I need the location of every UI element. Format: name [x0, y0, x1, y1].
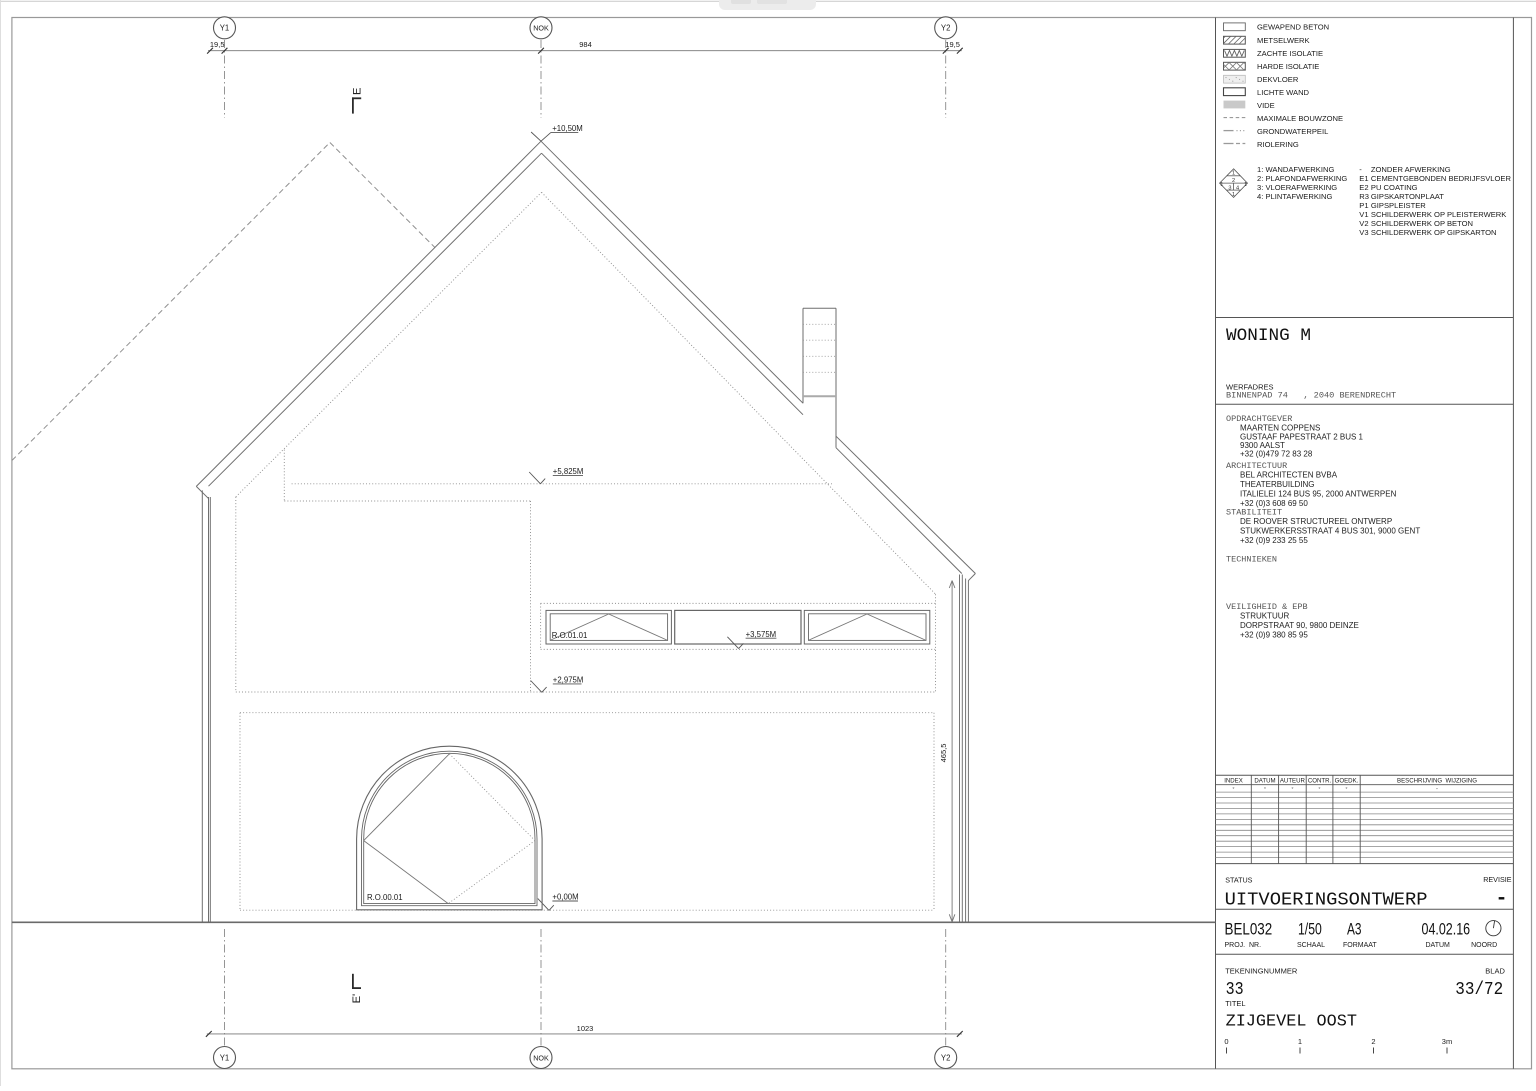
- svg-text:BEL032: BEL032: [1225, 921, 1273, 939]
- svg-text:19,5: 19,5: [945, 40, 960, 49]
- svg-text:SCHAAL: SCHAAL: [1297, 942, 1325, 949]
- svg-text:ZIJGEVEL OOST: ZIJGEVEL OOST: [1226, 1013, 1357, 1032]
- svg-text:STATUS: STATUS: [1225, 876, 1252, 885]
- svg-text:4: 4: [1236, 185, 1239, 191]
- svg-text:+2,975M: +2,975M: [553, 675, 584, 684]
- svg-text:THEATERBUILDING: THEATERBUILDING: [1240, 480, 1315, 489]
- svg-text:ZACHTE ISOLATIE: ZACHTE ISOLATIE: [1257, 49, 1323, 58]
- svg-text:VEILIGHEID & EPB: VEILIGHEID & EPB: [1226, 602, 1308, 612]
- svg-text:1: 1: [1298, 1037, 1302, 1046]
- svg-text:1: WANDAFWERKING: 1: WANDAFWERKING: [1257, 165, 1334, 174]
- svg-text:WONING M: WONING M: [1226, 326, 1311, 346]
- svg-text:Y1: Y1: [220, 1053, 230, 1062]
- svg-text:1: 1: [1232, 192, 1235, 198]
- svg-text:TITEL: TITEL: [1225, 999, 1245, 1008]
- svg-text:1: 1: [1220, 182, 1223, 188]
- svg-text:1023: 1023: [577, 1024, 594, 1033]
- svg-text:OPDRACHTGEVER: OPDRACHTGEVER: [1226, 414, 1292, 424]
- svg-text:SCHILDERWERK OP BETON: SCHILDERWERK OP BETON: [1371, 219, 1473, 228]
- svg-text:GEWAPEND BETON: GEWAPEND BETON: [1257, 23, 1329, 32]
- svg-text:NOK: NOK: [533, 24, 549, 33]
- svg-text:Y2: Y2: [941, 24, 951, 33]
- svg-text:9300 AALST: 9300 AALST: [1240, 441, 1285, 450]
- svg-text:+10,50M: +10,50M: [552, 124, 583, 133]
- svg-text:PU COATING: PU COATING: [1371, 183, 1418, 192]
- svg-text:P1: P1: [1359, 201, 1368, 210]
- svg-text:Y1: Y1: [220, 24, 230, 33]
- svg-text:E': E': [351, 994, 363, 1004]
- svg-text:04.02.16: 04.02.16: [1422, 921, 1471, 939]
- svg-text:GIPSKARTONPLAAT: GIPSKARTONPLAAT: [1371, 192, 1444, 201]
- svg-text:E: E: [351, 88, 363, 95]
- svg-text:DE ROOVER STRUCTUREEL ONTWERP: DE ROOVER STRUCTUREEL ONTWERP: [1240, 517, 1392, 526]
- svg-text:V3: V3: [1359, 228, 1368, 237]
- svg-text:AUTEUR: AUTEUR: [1280, 777, 1306, 784]
- svg-text:R.O.01.01: R.O.01.01: [552, 631, 588, 640]
- svg-text:NOORD: NOORD: [1471, 942, 1497, 949]
- svg-text:2: 2: [1371, 1037, 1375, 1046]
- svg-text:3: 3: [1228, 185, 1231, 191]
- svg-text:METSELWERK: METSELWERK: [1257, 36, 1310, 45]
- svg-text:BLAD: BLAD: [1485, 967, 1505, 976]
- svg-text:VIDE: VIDE: [1257, 101, 1275, 110]
- svg-text:4: PLINTAFWERKING: 4: PLINTAFWERKING: [1257, 192, 1332, 201]
- svg-text:BESCHRIJVING WIJZIGING: BESCHRIJVING WIJZIGING: [1397, 777, 1477, 784]
- svg-text:GIPSPLEISTER: GIPSPLEISTER: [1371, 201, 1426, 210]
- svg-text:DATUM: DATUM: [1254, 777, 1275, 784]
- svg-text:0: 0: [1224, 1037, 1228, 1046]
- svg-text:Y2: Y2: [941, 1053, 951, 1062]
- svg-text:CEMENTGEBONDEN BEDRIJFSVLOER: CEMENTGEBONDEN BEDRIJFSVLOER: [1371, 174, 1512, 183]
- svg-text:V1: V1: [1359, 210, 1368, 219]
- svg-text:+5,825M: +5,825M: [553, 467, 584, 476]
- svg-text:+32 (0)9 233 25 55: +32 (0)9 233 25 55: [1240, 536, 1308, 545]
- svg-text:2: PLAFONDAFWERKING: 2: PLAFONDAFWERKING: [1257, 174, 1347, 183]
- svg-text:LICHTE WAND: LICHTE WAND: [1257, 88, 1310, 97]
- svg-text:465,5: 465,5: [939, 744, 948, 763]
- svg-text:RIOLERING: RIOLERING: [1257, 140, 1299, 149]
- svg-text:984: 984: [579, 40, 592, 49]
- svg-text:BEL ARCHITECTEN BVBA: BEL ARCHITECTEN BVBA: [1240, 471, 1338, 480]
- svg-text:E1: E1: [1359, 174, 1368, 183]
- svg-text:DORPSTRAAT 90, 9800 DEINZE: DORPSTRAAT 90, 9800 DEINZE: [1240, 621, 1359, 630]
- svg-text:SCHILDERWERK OP GIPSKARTON: SCHILDERWERK OP GIPSKARTON: [1371, 228, 1497, 237]
- svg-text:STRUKTUUR: STRUKTUUR: [1240, 612, 1290, 621]
- svg-text:REVISIE: REVISIE: [1483, 875, 1512, 884]
- svg-text:HARDE ISOLATIE: HARDE ISOLATIE: [1257, 62, 1319, 71]
- svg-text:2: 2: [1232, 178, 1235, 184]
- svg-text:MAXIMALE BOUWZONE: MAXIMALE BOUWZONE: [1257, 114, 1343, 123]
- svg-text:R3: R3: [1359, 192, 1369, 201]
- svg-text:R.O.00.01: R.O.00.01: [367, 893, 403, 902]
- svg-text:STUKWERKERSSTRAAT 4 BUS 301, 9: STUKWERKERSSTRAAT 4 BUS 301, 9000 GENT: [1240, 527, 1420, 536]
- svg-text:NOK: NOK: [533, 1053, 549, 1062]
- svg-text:33: 33: [1226, 980, 1244, 1000]
- svg-text:UITVOERINGSONTWERP: UITVOERINGSONTWERP: [1225, 889, 1428, 911]
- svg-text:V2: V2: [1359, 219, 1368, 228]
- svg-text:33/72: 33/72: [1455, 980, 1503, 1000]
- svg-text:GOEDK.: GOEDK.: [1335, 777, 1359, 784]
- svg-text:ARCHITECTUUR: ARCHITECTUUR: [1226, 461, 1287, 471]
- svg-text:-: -: [1436, 785, 1438, 792]
- svg-text:3: VLOERAFWERKING: 3: VLOERAFWERKING: [1257, 183, 1337, 192]
- svg-text:CONTR.: CONTR.: [1308, 777, 1332, 784]
- svg-text:19,5: 19,5: [210, 40, 225, 49]
- svg-text:GRONDWATERPEIL: GRONDWATERPEIL: [1257, 127, 1328, 136]
- svg-text:PROJ. NR.: PROJ. NR.: [1225, 942, 1262, 949]
- svg-text:DEKVLOER: DEKVLOER: [1257, 75, 1299, 84]
- svg-text:1: 1: [1244, 182, 1247, 188]
- svg-text:ZONDER AFWERKING: ZONDER AFWERKING: [1371, 165, 1451, 174]
- svg-text:FORMAAT: FORMAAT: [1343, 942, 1377, 949]
- svg-text:1/50: 1/50: [1298, 921, 1322, 939]
- svg-text:A3: A3: [1347, 921, 1362, 939]
- svg-text:BINNENPAD 74 , 2040 BERENDRE: BINNENPAD 74 , 2040 BERENDRECHT: [1226, 391, 1396, 401]
- svg-text:TECHNIEKEN: TECHNIEKEN: [1226, 555, 1277, 565]
- svg-text:E2: E2: [1359, 183, 1368, 192]
- svg-text:MAARTEN COPPENS: MAARTEN COPPENS: [1240, 424, 1320, 433]
- svg-text:DATUM: DATUM: [1426, 942, 1451, 949]
- svg-text:+32 (0)9 380 85 95: +32 (0)9 380 85 95: [1240, 631, 1308, 640]
- svg-text:ITALIELEI 124 BUS 95, 2000 ANT: ITALIELEI 124 BUS 95, 2000 ANTWERPEN: [1240, 490, 1397, 499]
- svg-text:TEKENINGNUMMER: TEKENINGNUMMER: [1225, 967, 1298, 976]
- svg-text:1: 1: [1232, 171, 1235, 177]
- svg-text:INDEX: INDEX: [1224, 777, 1243, 784]
- svg-text:+3,575M: +3,575M: [746, 630, 777, 639]
- svg-text:STABILITEIT: STABILITEIT: [1226, 508, 1282, 518]
- svg-text:+32 (0)479 72 83 28: +32 (0)479 72 83 28: [1240, 450, 1313, 459]
- svg-text:+0,00M: +0,00M: [552, 893, 578, 902]
- svg-text:SCHILDERWERK OP PLEISTERWERK: SCHILDERWERK OP PLEISTERWERK: [1371, 210, 1506, 219]
- svg-text:-: -: [1496, 888, 1508, 911]
- svg-text:3m: 3m: [1442, 1037, 1452, 1046]
